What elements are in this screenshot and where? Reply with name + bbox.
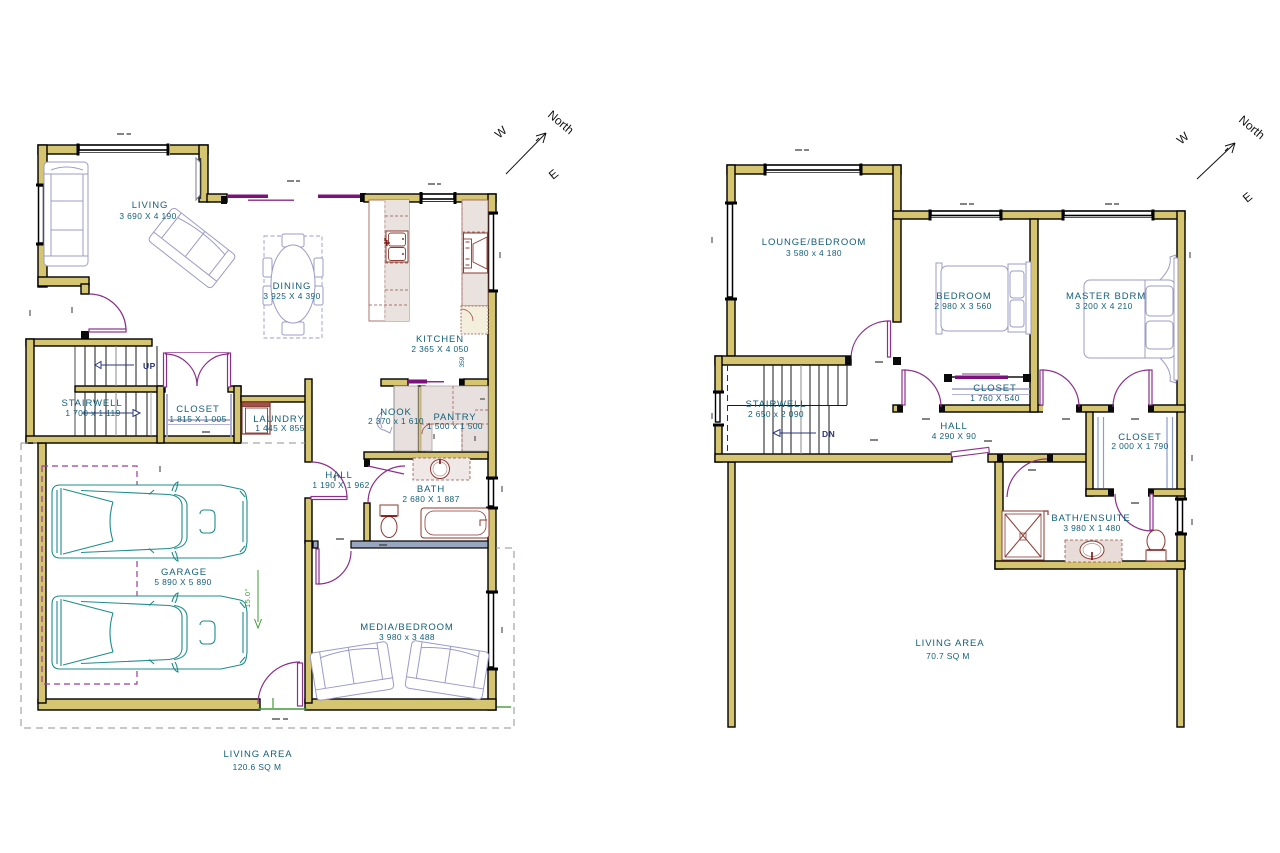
svg-text:5 890 X 5 890: 5 890 X 5 890: [154, 577, 211, 587]
svg-text:DN: DN: [822, 429, 835, 439]
svg-text:LIVING AREA: LIVING AREA: [223, 749, 292, 760]
svg-text:3 690 X 4 190: 3 690 X 4 190: [119, 211, 176, 221]
svg-text:3 980 x 3 488: 3 980 x 3 488: [379, 632, 435, 642]
svg-text:70.7 SQ M: 70.7 SQ M: [926, 651, 970, 661]
svg-text:15.0°: 15.0°: [243, 588, 252, 608]
svg-text:1 700 x 1 119: 1 700 x 1 119: [65, 408, 120, 418]
svg-text:UP: UP: [143, 361, 156, 371]
svg-text:1 815 X 1 005: 1 815 X 1 005: [169, 414, 226, 424]
svg-text:2 650 x 2 090: 2 650 x 2 090: [748, 409, 804, 419]
svg-text:LOUNGE/BEDROOM: LOUNGE/BEDROOM: [762, 237, 866, 248]
svg-text:2 000 X 1 790: 2 000 X 1 790: [1111, 441, 1168, 451]
svg-text:359: 359: [459, 356, 466, 367]
svg-text:1 760 X 540: 1 760 X 540: [970, 393, 1020, 403]
svg-text:3 925 X 4 390: 3 925 X 4 390: [263, 291, 320, 301]
svg-text:2 365 X 4 050: 2 365 X 4 050: [411, 344, 468, 354]
svg-text:3 580 x 4 180: 3 580 x 4 180: [786, 248, 842, 258]
svg-text:LIVING: LIVING: [132, 200, 169, 211]
svg-text:3 980 X 1 480: 3 980 X 1 480: [1063, 523, 1120, 533]
svg-text:120.6 SQ M: 120.6 SQ M: [233, 762, 282, 772]
svg-text:1 190 X 1 962: 1 190 X 1 962: [312, 480, 369, 490]
svg-text:2 680 X 1 887: 2 680 X 1 887: [402, 494, 459, 504]
svg-text:1 500 x 1 500: 1 500 x 1 500: [427, 421, 483, 431]
svg-text:1 445 X 855: 1 445 X 855: [255, 423, 305, 433]
svg-text:LIVING AREA: LIVING AREA: [915, 638, 984, 649]
svg-text:4 290 X 90: 4 290 X 90: [932, 431, 977, 441]
svg-text:3 200 X 4 210: 3 200 X 4 210: [1075, 301, 1132, 311]
svg-text:2 980 X 3 560: 2 980 X 3 560: [934, 301, 991, 311]
svg-text:2 370 x 1 610: 2 370 x 1 610: [368, 416, 424, 426]
